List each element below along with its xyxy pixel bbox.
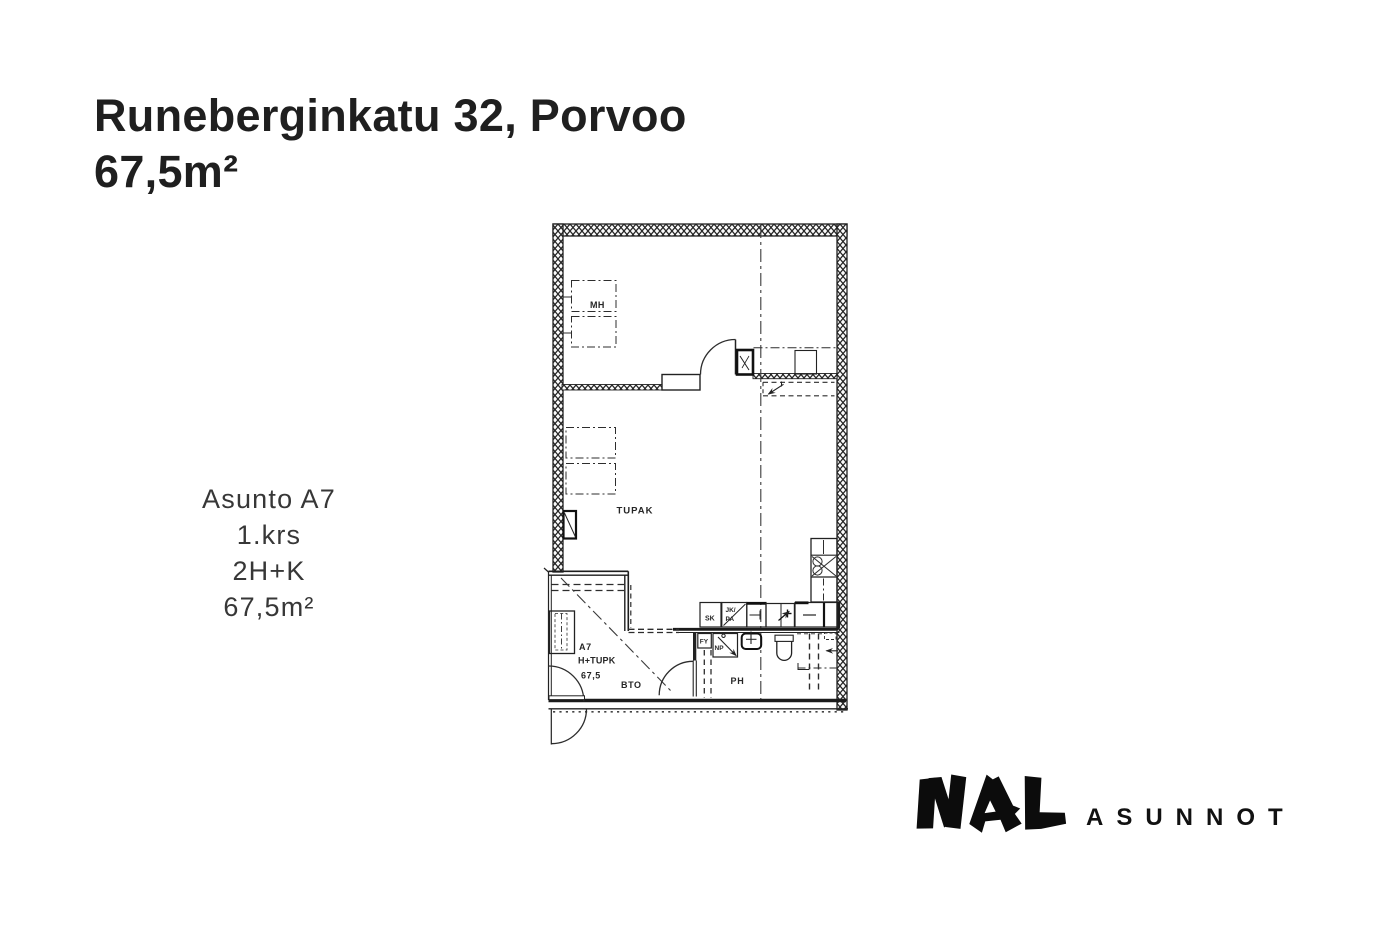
svg-text:ASUNNOT: ASUNNOT (1086, 804, 1296, 831)
svg-text:SK: SK (705, 616, 715, 623)
svg-text:H+TUPK: H+TUPK (578, 656, 616, 666)
svg-text:PA: PA (726, 616, 735, 623)
svg-text:MH: MH (590, 300, 605, 310)
svg-text:A7: A7 (579, 642, 592, 652)
svg-text:TUPAK: TUPAK (617, 506, 654, 517)
svg-text:NP: NP (715, 645, 725, 652)
svg-text:FY: FY (700, 639, 709, 646)
svg-text:BTO: BTO (621, 680, 642, 690)
svg-text:67,5: 67,5 (581, 671, 601, 681)
svg-text:JK/: JK/ (726, 607, 736, 614)
svg-text:PH: PH (731, 676, 745, 686)
